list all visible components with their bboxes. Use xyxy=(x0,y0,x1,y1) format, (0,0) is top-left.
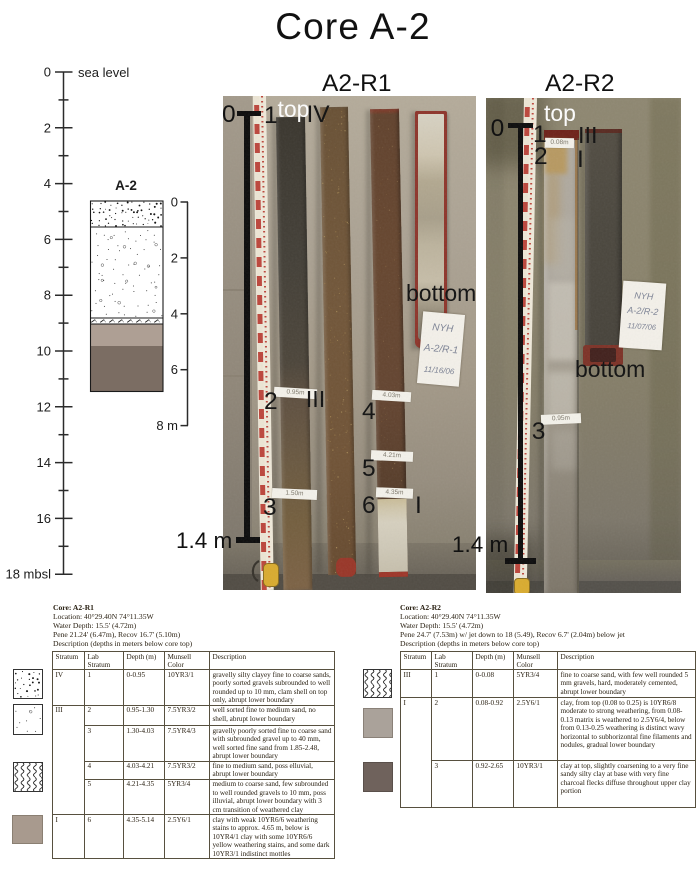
svg-text:16: 16 xyxy=(37,511,51,526)
svg-text:18 mbsl: 18 mbsl xyxy=(5,567,51,582)
svg-text:8: 8 xyxy=(44,288,51,303)
svg-text:4: 4 xyxy=(171,306,178,321)
svg-text:A-2: A-2 xyxy=(115,178,137,193)
svg-text:4: 4 xyxy=(44,176,51,191)
svg-text:14: 14 xyxy=(37,455,51,470)
svg-text:0: 0 xyxy=(171,195,178,210)
svg-text:8 m: 8 m xyxy=(156,418,178,433)
svg-text:6: 6 xyxy=(171,362,178,377)
svg-text:0: 0 xyxy=(44,65,51,80)
svg-text:10: 10 xyxy=(37,344,51,359)
svg-text:12: 12 xyxy=(37,399,51,414)
svg-text:2: 2 xyxy=(44,120,51,135)
svg-text:sea level: sea level xyxy=(78,65,129,80)
svg-text:6: 6 xyxy=(44,232,51,247)
svg-text:2: 2 xyxy=(171,250,178,265)
